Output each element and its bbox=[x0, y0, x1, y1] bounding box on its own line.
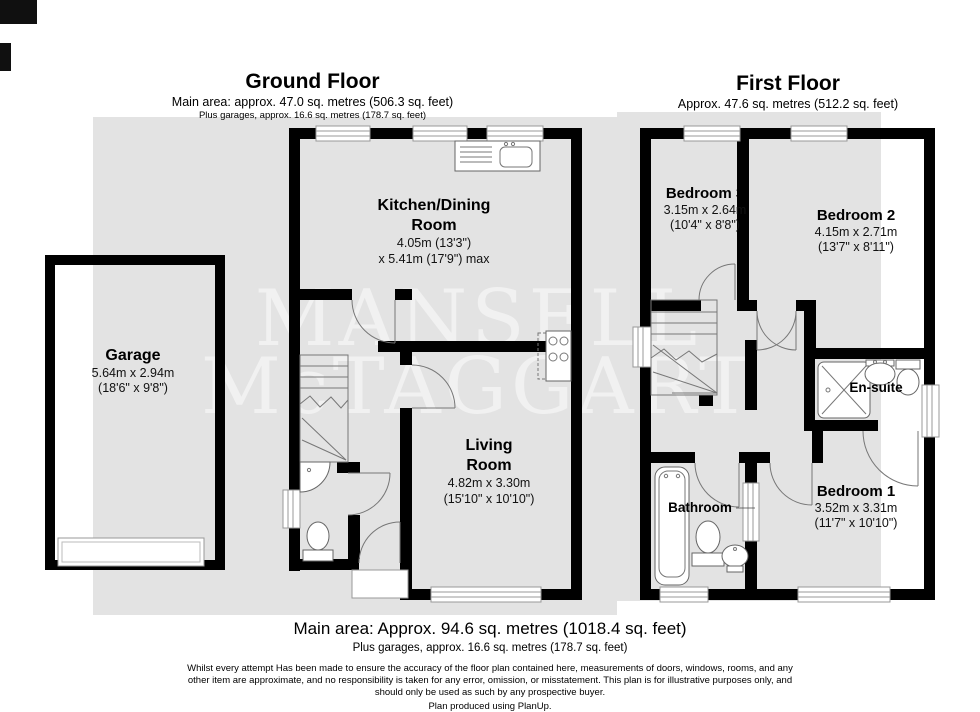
ground-floor-title: Ground Floor bbox=[120, 70, 505, 93]
first-floor-header: First Floor Approx. 47.6 sq. metres (512… bbox=[620, 72, 956, 111]
room-dim-living: 4.82m x 3.30m bbox=[448, 476, 531, 490]
room-label-bedroom1: Bedroom 1 bbox=[817, 483, 895, 500]
plan-footer: Main area: Approx. 94.6 sq. metres (1018… bbox=[0, 619, 980, 712]
room-dim-garage: 5.64m x 2.94m bbox=[92, 366, 175, 380]
kitchen-sink-icon bbox=[455, 141, 540, 171]
room-dim-bedroom1: 3.52m x 3.31m bbox=[815, 501, 898, 515]
room-dim-bedroom2: 4.15m x 2.71m bbox=[815, 225, 898, 239]
front-door-step bbox=[352, 570, 408, 598]
disclaimer-line: should only be used as such by any prosp… bbox=[0, 687, 980, 699]
room-dim-bedroom1: (11'7" x 10'10") bbox=[815, 516, 898, 530]
room-label-living: Living bbox=[465, 437, 512, 454]
room-dim-kitchen: x 5.41m (17'9") max bbox=[378, 252, 490, 266]
room-label-bedroom3: Bedroom 3 bbox=[666, 185, 744, 202]
room-label-kitchen: Room bbox=[411, 217, 456, 234]
first-floor-title: First Floor bbox=[620, 72, 956, 95]
room-label-kitchen: Kitchen/Dining bbox=[378, 197, 491, 214]
ground-floor-garage-area: Plus garages, approx. 16.6 sq. metres (1… bbox=[120, 110, 505, 121]
watermark: MANSELL McTAGGART bbox=[201, 274, 755, 432]
room-label-bathroom: Bathroom bbox=[668, 500, 732, 515]
watermark-line2: McTAGGART bbox=[201, 342, 755, 432]
ground-floor-header: Ground Floor Main area: approx. 47.0 sq.… bbox=[120, 70, 505, 121]
room-label-bedroom2: Bedroom 2 bbox=[817, 207, 895, 224]
planup-credit: Plan produced using PlanUp. bbox=[0, 701, 980, 712]
room-label-living: Room bbox=[466, 457, 511, 474]
room-dim-garage: (18'6" x 9'8") bbox=[98, 381, 168, 395]
floorplan-page: MANSELL McTAGGART Garage 5.64m x 2.94m (… bbox=[0, 0, 980, 712]
total-main-area: Main area: Approx. 94.6 sq. metres (1018… bbox=[0, 619, 980, 639]
disclaimer-line: Whilst every attempt Has been made to en… bbox=[0, 663, 980, 675]
room-label-garage: Garage bbox=[105, 347, 160, 364]
room-dim-bedroom2: (13'7" x 8'11") bbox=[818, 240, 894, 254]
disclaimer: Whilst every attempt Has been made to en… bbox=[0, 663, 980, 699]
room-dim-bedroom3: 3.15m x 2.64m bbox=[664, 203, 747, 217]
room-dim-kitchen: 4.05m (13'3") bbox=[397, 236, 471, 250]
bath-icon bbox=[655, 467, 689, 585]
scan-artifact bbox=[0, 0, 37, 24]
room-label-ensuite: En-suite bbox=[849, 380, 903, 395]
garage-door bbox=[58, 538, 204, 566]
ground-floor-area: Main area: approx. 47.0 sq. metres (506.… bbox=[120, 95, 505, 109]
room-dim-bedroom3: (10'4" x 8'8") bbox=[670, 218, 740, 232]
room-dim-living: (15'10" x 10'10") bbox=[444, 492, 535, 506]
first-floor-area: Approx. 47.6 sq. metres (512.2 sq. feet) bbox=[620, 97, 956, 111]
total-garage-area: Plus garages, approx. 16.6 sq. metres (1… bbox=[0, 642, 980, 655]
disclaimer-line: other item are approximate, and no respo… bbox=[0, 675, 980, 687]
scan-artifact bbox=[0, 43, 11, 71]
